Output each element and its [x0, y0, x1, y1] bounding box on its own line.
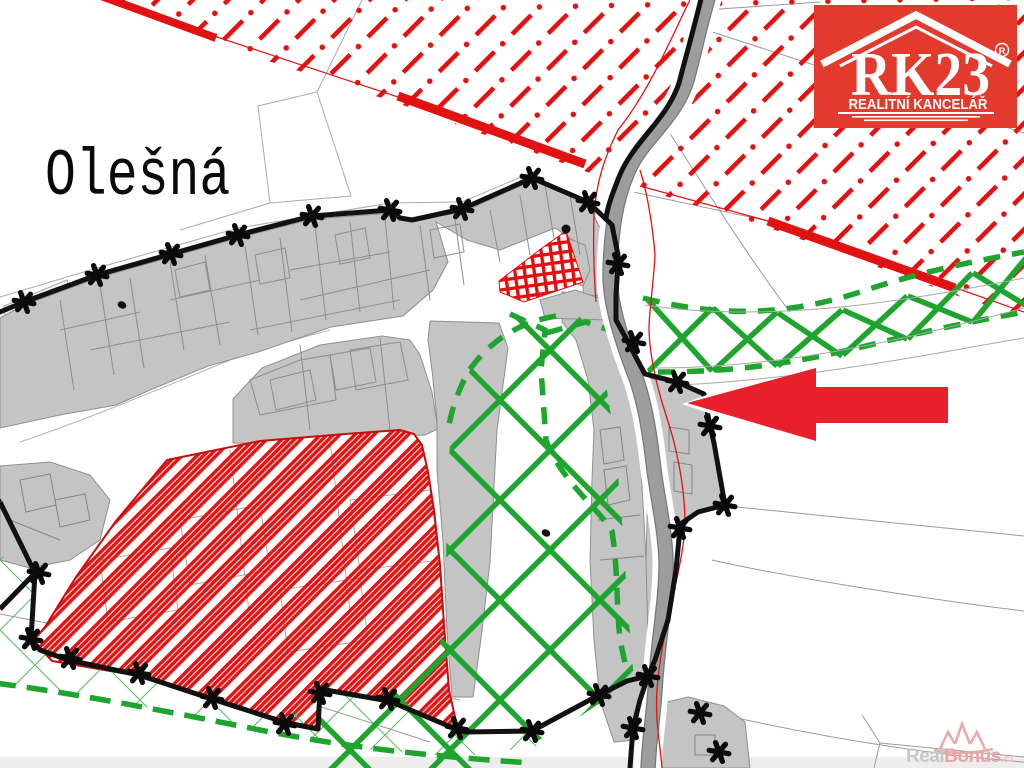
svg-text:R: R: [999, 46, 1006, 57]
svg-text:RealBonus.cz: RealBonus.cz: [906, 746, 1015, 767]
svg-text:Olešná: Olešná: [45, 139, 230, 214]
svg-text:REALITNÍ KANCELÁŘ: REALITNÍ KANCELÁŘ: [849, 95, 988, 113]
